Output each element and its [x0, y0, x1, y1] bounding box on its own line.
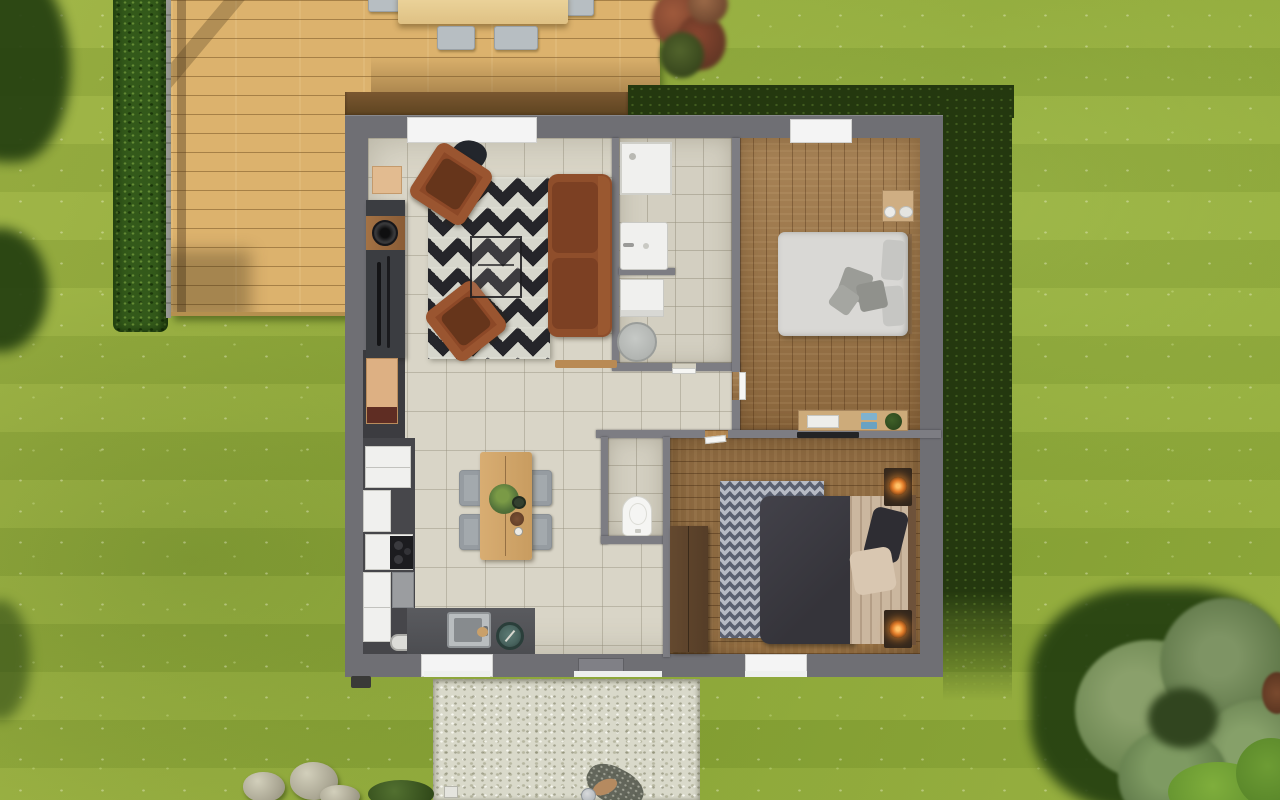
fridge-gap: [366, 467, 410, 468]
cabinet-gap: [364, 607, 390, 608]
window-living-top: [407, 117, 537, 143]
front-door: [578, 658, 624, 672]
sink-drain: [643, 243, 649, 249]
kitchen-cabinet: [363, 572, 391, 642]
tree-shadow: [0, 600, 30, 720]
book: [861, 413, 877, 420]
desk-base: [367, 407, 397, 423]
window-sill: [745, 671, 807, 677]
toilet-seat-line: [629, 503, 647, 525]
nightstand-decor: [884, 206, 896, 218]
door-threshold: [574, 671, 662, 677]
wall-bedrooms-horizontal: [596, 430, 941, 438]
cushion: [855, 279, 888, 312]
duvet-dark: [760, 496, 854, 644]
washing-machine: [620, 279, 664, 317]
paper: [807, 415, 839, 428]
burner: [394, 555, 403, 564]
garden-shrub: [368, 780, 434, 800]
nightstand-lamp: [884, 468, 912, 506]
lamp-glow: [889, 620, 907, 638]
shrub-leaf: [660, 32, 704, 78]
wall-wc-bottom: [601, 536, 667, 544]
toilet: [622, 496, 652, 536]
wall-wc-left: [601, 437, 608, 544]
deck-chair: [437, 26, 475, 50]
deck-edge-shadow: [371, 55, 660, 97]
deck-chair: [566, 0, 594, 16]
sofa-cushion: [552, 182, 598, 253]
oven: [365, 534, 413, 570]
red-shrub: [648, 0, 736, 88]
book: [861, 422, 877, 429]
speaker: [372, 220, 398, 246]
lamp-glow: [889, 477, 907, 495]
cup: [514, 527, 523, 536]
sofa-backrest: [598, 176, 610, 335]
shower-drain: [629, 153, 636, 160]
path-item: [444, 786, 458, 798]
person-head: [581, 788, 596, 800]
bathroom-door: [672, 368, 696, 374]
soundbar: [377, 262, 381, 346]
outdoor-dining-table: [398, 0, 568, 24]
bowl: [510, 512, 524, 526]
sofa: [548, 174, 612, 337]
washer-door-edge: [621, 310, 663, 316]
gravel-path: [433, 679, 700, 800]
bed-top: [778, 232, 912, 336]
stepping-rock: [243, 772, 285, 800]
nightstand-decor: [899, 206, 913, 218]
bedroom-top-door: [739, 372, 746, 400]
deck-corner-shadow: [171, 250, 251, 316]
nightstand-lamp: [884, 610, 912, 648]
wall-hall-bedroom-bottom: [663, 437, 670, 657]
faucet: [623, 243, 634, 247]
laundry-basket: [617, 322, 657, 362]
remote: [387, 256, 390, 348]
pillow-beige: [848, 546, 897, 597]
dining-table: [480, 452, 532, 560]
deck-chair: [368, 0, 400, 12]
toilet-flush: [635, 529, 641, 533]
armchair-seat: [423, 156, 478, 211]
garden-floorplan-scene: [0, 0, 1280, 800]
hedge-row: [113, 0, 168, 332]
outdoor-unit: [351, 676, 371, 688]
counter-segment: [391, 490, 415, 532]
armchair-seat: [439, 294, 492, 347]
console-bench: [555, 360, 617, 368]
stepping-rock: [320, 785, 360, 800]
bathroom-sink: [620, 222, 668, 270]
window-sill: [424, 671, 490, 677]
kitchen-cabinet: [363, 490, 391, 532]
dishwasher: [392, 572, 414, 608]
desk: [798, 410, 908, 431]
window-bedroom-top: [790, 119, 852, 143]
floor-decor-round: [496, 622, 524, 650]
pillow: [881, 239, 906, 280]
burner: [394, 541, 403, 550]
tree-core: [1148, 688, 1218, 748]
wardrobe-split: [688, 526, 689, 652]
wall-tv: [797, 432, 859, 438]
desk-plant: [885, 413, 902, 430]
floor-decor-dot: [477, 627, 488, 637]
fridge: [365, 446, 411, 488]
coffee-table-shelf: [478, 264, 514, 266]
shower-tray: [620, 142, 672, 195]
tv-console: [366, 200, 405, 358]
cooktop: [390, 536, 413, 569]
deck-chair: [494, 26, 538, 50]
bowl: [512, 496, 526, 509]
decor-needle: [505, 630, 516, 642]
wardrobe: [670, 526, 708, 652]
tree-shadow: [0, 228, 48, 352]
sofa-cushion: [552, 258, 598, 329]
burner: [404, 548, 411, 555]
hedge-shadow-right: [943, 96, 1012, 700]
tree-shadow: [0, 0, 70, 162]
wall-shelf: [372, 166, 402, 194]
kitchen-desk: [366, 358, 398, 424]
coffee-table: [470, 236, 522, 298]
